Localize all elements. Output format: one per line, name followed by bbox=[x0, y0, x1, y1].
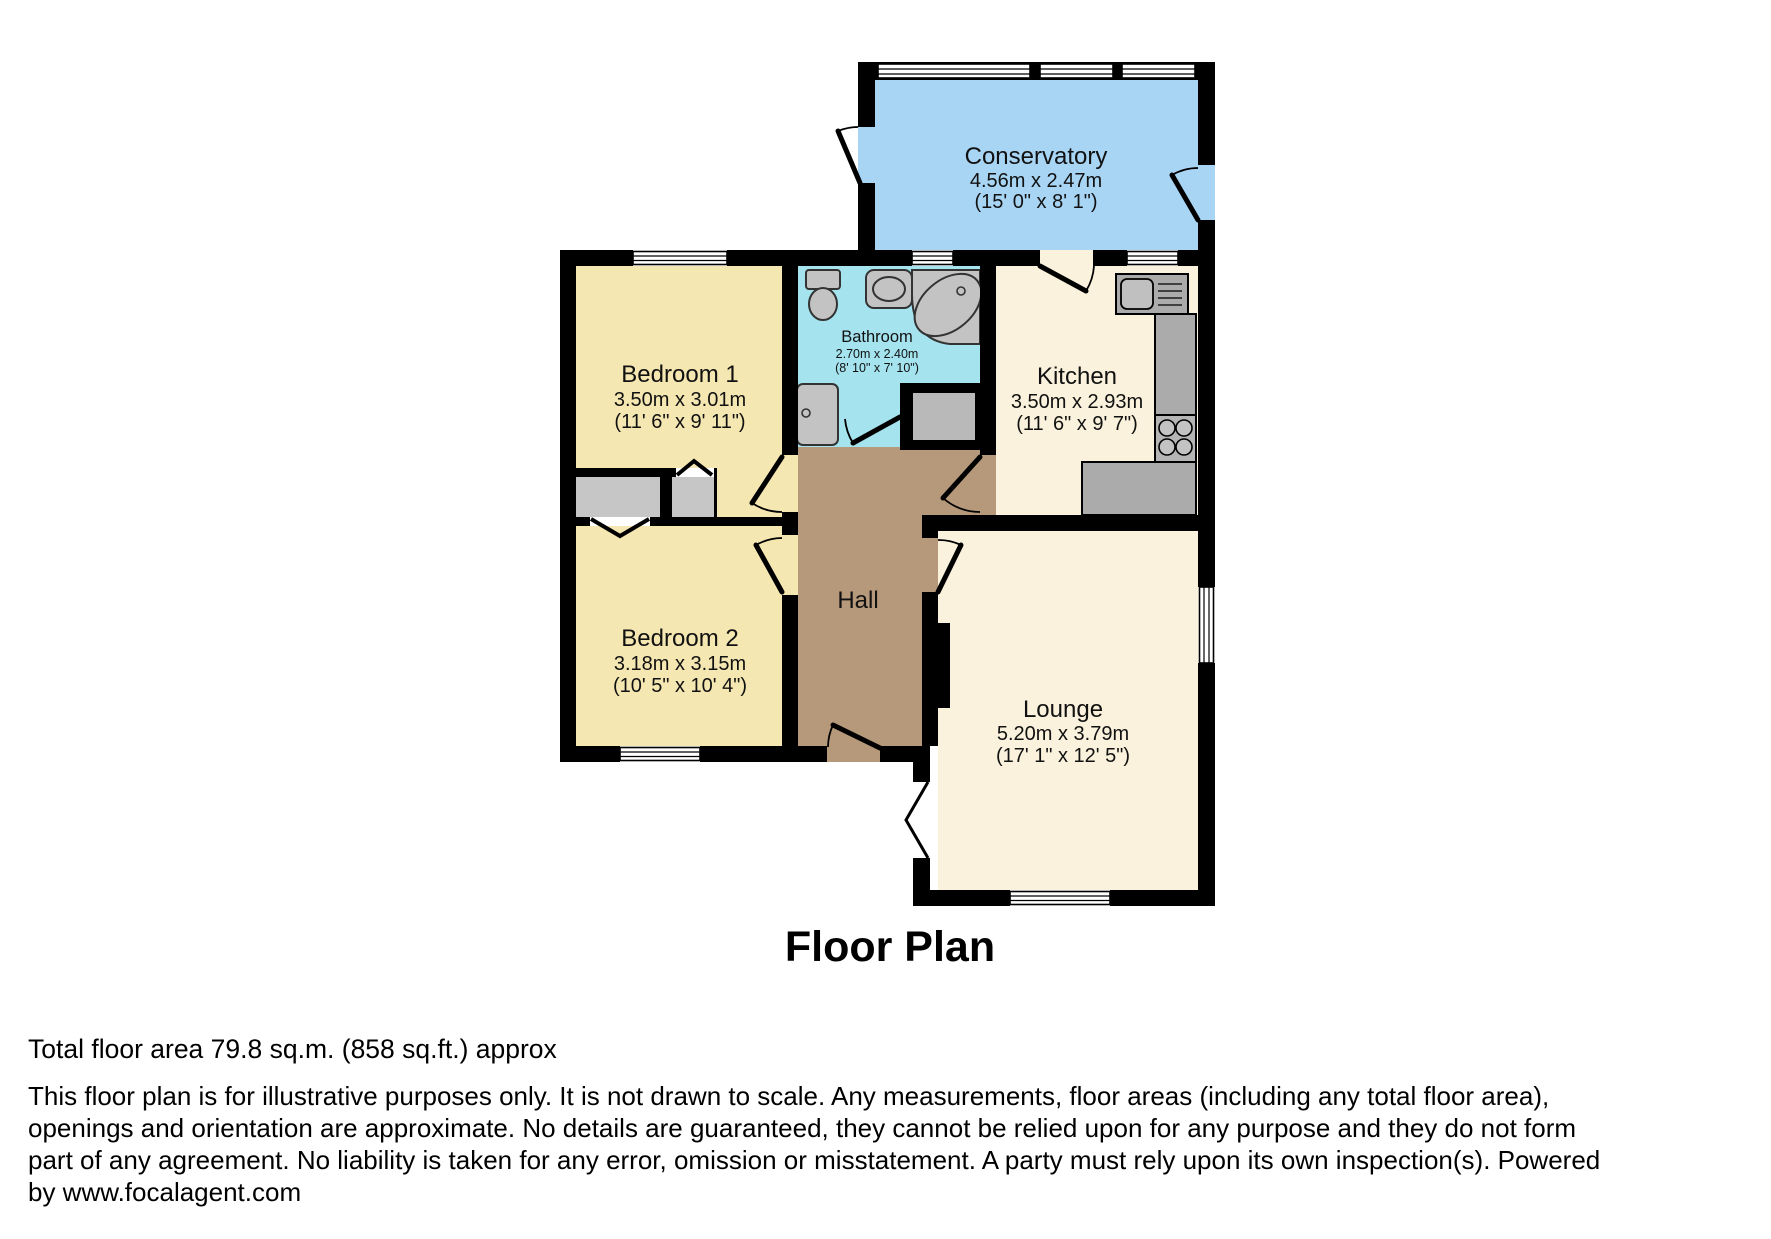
chimney-breast bbox=[938, 623, 950, 708]
bathroom-window bbox=[912, 252, 953, 265]
bedroom2-window bbox=[620, 748, 700, 761]
svg-text:(17' 1" x 12' 5"): (17' 1" x 12' 5") bbox=[996, 745, 1130, 767]
svg-text:(11' 6" x 9' 7"): (11' 6" x 9' 7") bbox=[1016, 413, 1138, 435]
shower-icon bbox=[797, 384, 838, 445]
label-conservatory: Conservatory 4.56m x 2.47m (15' 0" x 8' … bbox=[965, 143, 1108, 213]
disclaimer-line: part of any agreement. No liability is t… bbox=[28, 1144, 1758, 1176]
svg-text:(11' 6" x 9' 11"): (11' 6" x 9' 11") bbox=[614, 411, 745, 433]
disclaimer-line: openings and orientation are approximate… bbox=[28, 1112, 1758, 1144]
svg-text:Hall: Hall bbox=[837, 587, 878, 614]
conservatory-left-door bbox=[838, 127, 860, 183]
svg-text:2.70m x 2.40m: 2.70m x 2.40m bbox=[836, 347, 919, 361]
svg-text:Bedroom 1: Bedroom 1 bbox=[621, 361, 738, 388]
wardrobe-right bbox=[672, 461, 714, 517]
lounge-bifold-door bbox=[906, 782, 930, 858]
bathroom-cupboard bbox=[900, 383, 983, 450]
svg-text:3.50m x 2.93m: 3.50m x 2.93m bbox=[1011, 391, 1143, 413]
total-floor-area-text: Total floor area 79.8 sq.m. (858 sq.ft.)… bbox=[28, 1034, 557, 1065]
svg-text:Kitchen: Kitchen bbox=[1037, 363, 1117, 390]
hob-icon bbox=[1155, 415, 1196, 462]
page-title: Floor Plan bbox=[560, 923, 1220, 972]
svg-text:Bedroom 2: Bedroom 2 bbox=[621, 625, 738, 652]
toilet-icon bbox=[806, 270, 840, 320]
svg-text:(8' 10" x 7' 10"): (8' 10" x 7' 10") bbox=[835, 361, 919, 375]
lounge-bottom-window bbox=[1010, 892, 1110, 905]
svg-text:Conservatory: Conservatory bbox=[965, 143, 1108, 170]
disclaimer-line: by www.focalagent.com bbox=[28, 1176, 1758, 1208]
label-bedroom1: Bedroom 1 3.50m x 3.01m (11' 6" x 9' 11"… bbox=[614, 361, 746, 433]
svg-text:5.20m x 3.79m: 5.20m x 3.79m bbox=[997, 723, 1129, 745]
svg-text:3.50m x 3.01m: 3.50m x 3.01m bbox=[614, 389, 746, 411]
disclaimer-text: This floor plan is for illustrative purp… bbox=[28, 1080, 1758, 1208]
svg-text:3.18m x 3.15m: 3.18m x 3.15m bbox=[614, 653, 746, 675]
kitchen-window bbox=[1127, 252, 1178, 265]
floor-plan-page: Conservatory 4.56m x 2.47m (15' 0" x 8' … bbox=[0, 0, 1771, 1239]
lounge-right-window bbox=[1200, 587, 1214, 663]
svg-text:Lounge: Lounge bbox=[1023, 696, 1103, 723]
svg-text:4.56m x 2.47m: 4.56m x 2.47m bbox=[970, 170, 1102, 192]
label-bedroom2: Bedroom 2 3.18m x 3.15m (10' 5" x 10' 4"… bbox=[613, 625, 747, 697]
label-bathroom: Bathroom 2.70m x 2.40m (8' 10" x 7' 10") bbox=[835, 328, 919, 375]
svg-text:(15' 0" x 8' 1"): (15' 0" x 8' 1") bbox=[975, 191, 1098, 213]
bedroom1-window bbox=[633, 252, 727, 265]
svg-text:(10' 5" x 10' 4"): (10' 5" x 10' 4") bbox=[613, 675, 747, 697]
svg-text:Bathroom: Bathroom bbox=[841, 328, 913, 346]
basin-icon bbox=[866, 270, 912, 308]
label-hall: Hall bbox=[837, 587, 878, 614]
disclaimer-line: This floor plan is for illustrative purp… bbox=[28, 1080, 1758, 1112]
